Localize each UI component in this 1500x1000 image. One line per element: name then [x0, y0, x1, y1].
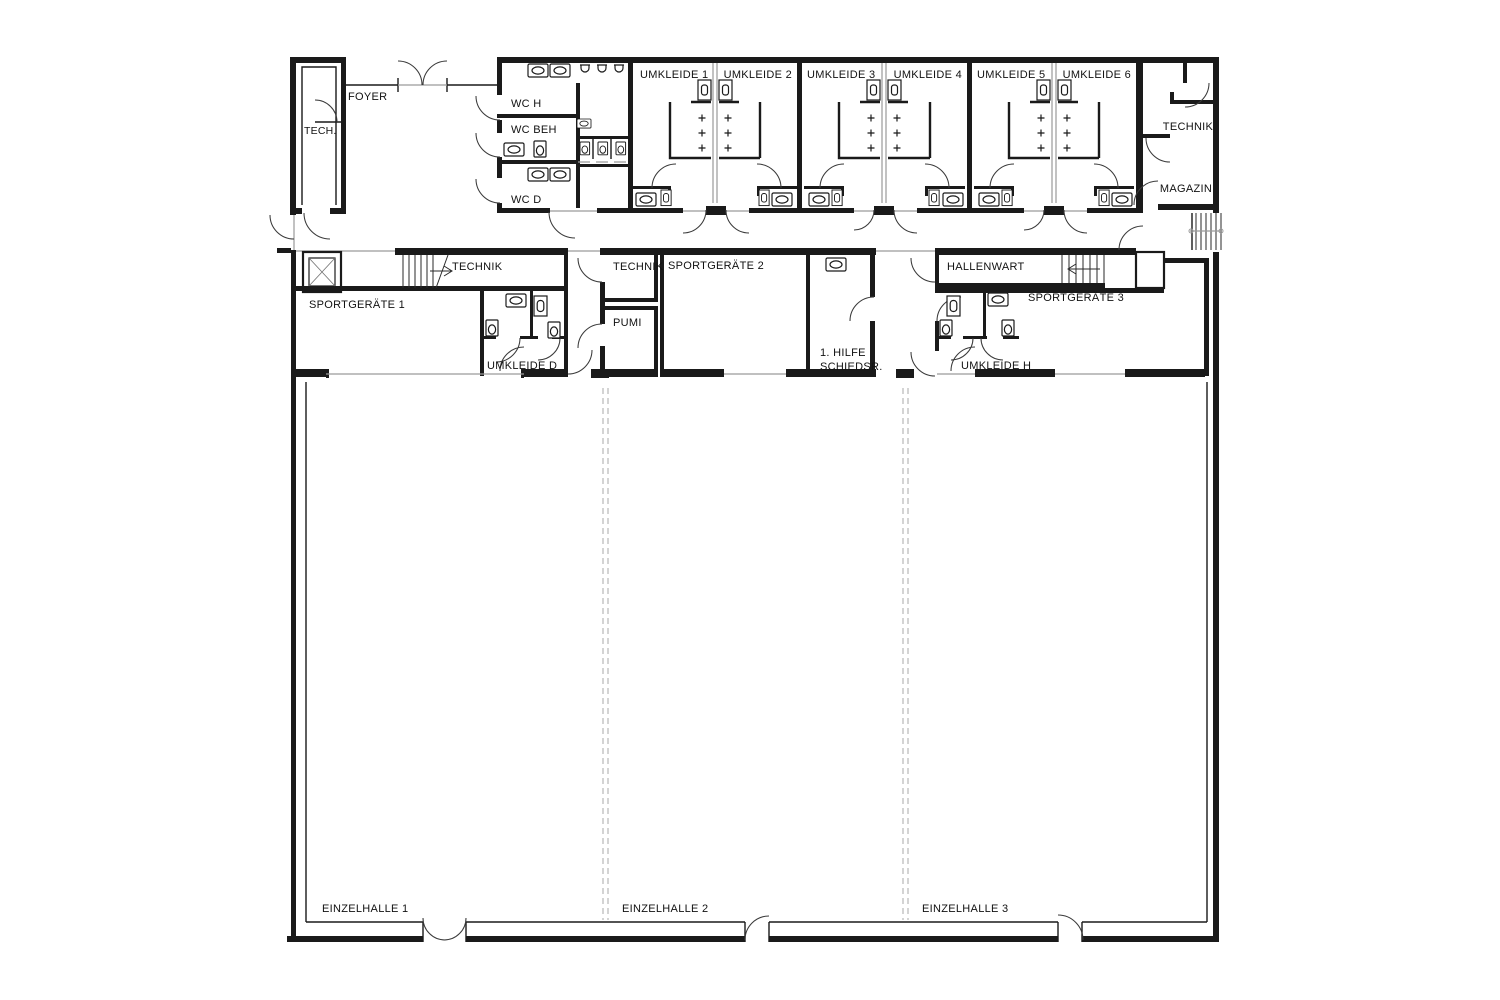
- elevator-cross: [309, 258, 335, 286]
- urinal-fixture: [597, 65, 607, 72]
- toilet-fixture: [598, 142, 608, 155]
- sink-fixture: [550, 168, 570, 181]
- room-label-einzelhalle-2: EINZELHALLE 2: [622, 903, 708, 915]
- room-label-sportgeraete-2: SPORTGERÄTE 2: [668, 260, 764, 272]
- sink-fixture: [550, 64, 570, 77]
- room-label-umkleide-h: UMKLEIDE H: [961, 360, 1031, 372]
- shower-fixture: [947, 296, 960, 316]
- room-label-magazin: MAGAZIN: [1160, 183, 1212, 195]
- room-label-umkleide-4: UMKLEIDE 4: [894, 69, 962, 81]
- sink-fixture: [577, 119, 591, 128]
- room-label-wc-d: WC D: [511, 194, 542, 206]
- elevator-shaft: [303, 252, 341, 292]
- floor-plan-drawing: TECH. FOYER WC H WC BEH WC D UMKLEIDE 1 …: [0, 0, 1500, 1000]
- hook-symbol: [725, 130, 732, 137]
- hook-symbol: [868, 130, 875, 137]
- sink-fixture: [943, 193, 963, 206]
- bench-lines: [670, 102, 1099, 158]
- room-label-tech: TECH.: [304, 125, 337, 137]
- toilet-fixture: [486, 320, 498, 336]
- room-label-schiedsrichter: SCHIEDSR.: [820, 361, 883, 373]
- room-label-umkleide-d: UMKLEIDE D: [487, 360, 557, 372]
- room-label-wc-h: WC H: [511, 98, 542, 110]
- sink-fixture: [504, 143, 524, 156]
- sink-fixture: [636, 193, 656, 206]
- hook-symbol: [868, 115, 875, 122]
- stair-treads: [1062, 255, 1104, 283]
- locker-box: [888, 80, 901, 100]
- sink-fixture: [528, 64, 548, 77]
- room-label-sportgeraete-1: SPORTGERÄTE 1: [309, 299, 405, 311]
- room-label-pumi: PUMI: [613, 317, 642, 329]
- shower-fixture: [1002, 190, 1012, 206]
- walls-solid: [277, 57, 1219, 942]
- room-label-erste-hilfe: 1. HILFE: [820, 347, 866, 359]
- hook-symbol: [868, 145, 875, 152]
- wall-segments: [277, 57, 1219, 942]
- sink-fixture: [809, 193, 829, 206]
- dashed-divider-lines: [603, 388, 908, 920]
- hook-symbol: [1038, 130, 1045, 137]
- room-label-foyer: FOYER: [348, 91, 387, 103]
- room-label-hallenwart: HALLENWART: [947, 261, 1025, 273]
- toilet-fixture: [1002, 320, 1014, 336]
- room-label-umkleide-2: UMKLEIDE 2: [724, 69, 792, 81]
- urinal-fixture: [580, 65, 590, 72]
- toilet-fixture: [616, 142, 626, 155]
- room-label-technik-center: TECHNIK: [613, 261, 664, 273]
- room-label-wc-beh: WC BEH: [511, 124, 557, 136]
- hook-symbol: [894, 145, 901, 152]
- sink-fixture: [988, 293, 1008, 306]
- hook-symbol: [1064, 130, 1071, 137]
- urinal-fixture: [614, 65, 624, 72]
- hook-symbol: [1038, 115, 1045, 122]
- toilet-fixture: [548, 322, 560, 338]
- stairs-hallenwart: [1062, 255, 1104, 283]
- hook-symbol: [1064, 145, 1071, 152]
- sink-fixture: [528, 168, 548, 181]
- locker-box: [1058, 80, 1071, 100]
- stairs-west: [403, 255, 452, 288]
- floor-joint-lines: [294, 63, 1125, 374]
- changing-room-benches: [670, 102, 1099, 158]
- stairs-east: [1189, 213, 1223, 250]
- gray-lines: [294, 63, 1125, 374]
- hook-symbol: [699, 145, 706, 152]
- floor-plan-sheet: TECH. FOYER WC H WC BEH WC D UMKLEIDE 1 …: [0, 0, 1500, 1000]
- room-label-technik-ne: TECHNIK: [1163, 121, 1214, 133]
- room-label-einzelhalle-3: EINZELHALLE 3: [922, 903, 1008, 915]
- room-label-sportgeraete-3: SPORTGERÄTE 3: [1028, 292, 1124, 304]
- room-label-umkleide-5: UMKLEIDE 5: [977, 69, 1045, 81]
- hook-symbol: [894, 115, 901, 122]
- room-label-technik-stairs: TECHNIK: [452, 261, 503, 273]
- sink-fixture: [826, 258, 846, 271]
- shower-fixture: [759, 190, 769, 206]
- shower-fixture: [534, 296, 547, 316]
- shower-fixture: [661, 190, 671, 206]
- partition-boxes: [698, 80, 1071, 100]
- hook-symbol: [725, 115, 732, 122]
- hook-symbol: [725, 145, 732, 152]
- duct-shaft: [1136, 252, 1164, 288]
- hook-symbol: [699, 130, 706, 137]
- locker-box: [719, 80, 732, 100]
- locker-box: [867, 80, 880, 100]
- sink-fixture: [506, 294, 526, 307]
- stair-treads: [403, 255, 452, 288]
- room-label-umkleide-6: UMKLEIDE 6: [1063, 69, 1131, 81]
- locker-box: [698, 80, 711, 100]
- hook-symbol: [894, 130, 901, 137]
- shower-fixture: [832, 190, 842, 206]
- locker-box: [1037, 80, 1050, 100]
- toilet-fixture: [580, 142, 590, 155]
- toilet-fixture: [940, 320, 952, 336]
- hall-divider-curtains: [603, 388, 908, 920]
- wall-lining-lines: [302, 67, 1207, 942]
- shower-fixture: [929, 190, 939, 206]
- room-label-einzelhalle-1: EINZELHALLE 1: [322, 903, 408, 915]
- hook-symbol: [1064, 115, 1071, 122]
- door-swing-arcs: [270, 61, 1209, 940]
- sink-fixture: [979, 193, 999, 206]
- walls-thin: [302, 67, 1207, 942]
- hook-symbol: [699, 115, 706, 122]
- toilet-fixture: [534, 141, 546, 157]
- door-arcs: [270, 61, 1209, 940]
- hook-symbol: [1038, 145, 1045, 152]
- shaft-outline: [1136, 252, 1164, 288]
- shower-fixture: [1099, 190, 1109, 206]
- coat-hooks: [699, 115, 1071, 152]
- sink-fixture: [772, 193, 792, 206]
- room-label-umkleide-1: UMKLEIDE 1: [640, 69, 708, 81]
- sink-fixture: [1112, 193, 1132, 206]
- room-label-umkleide-3: UMKLEIDE 3: [807, 69, 875, 81]
